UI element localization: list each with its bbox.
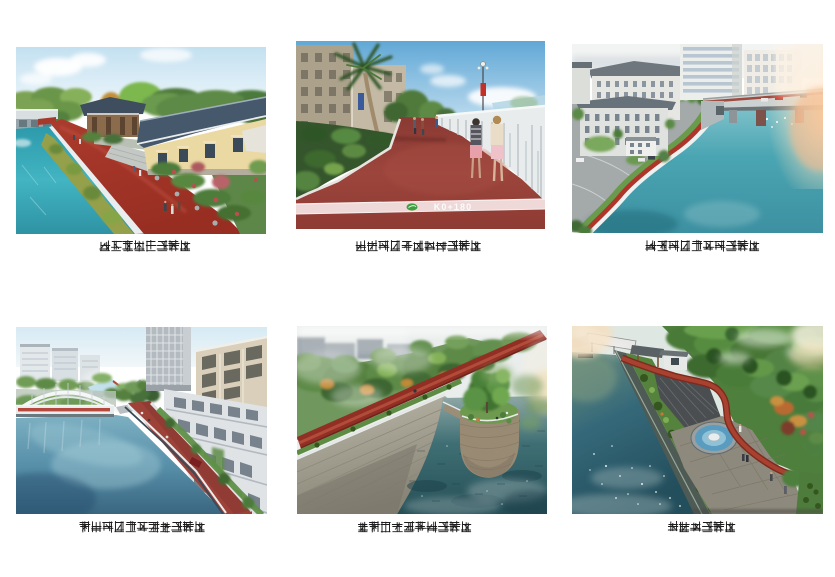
svg-text:K0+180: K0+180 bbox=[434, 202, 472, 212]
